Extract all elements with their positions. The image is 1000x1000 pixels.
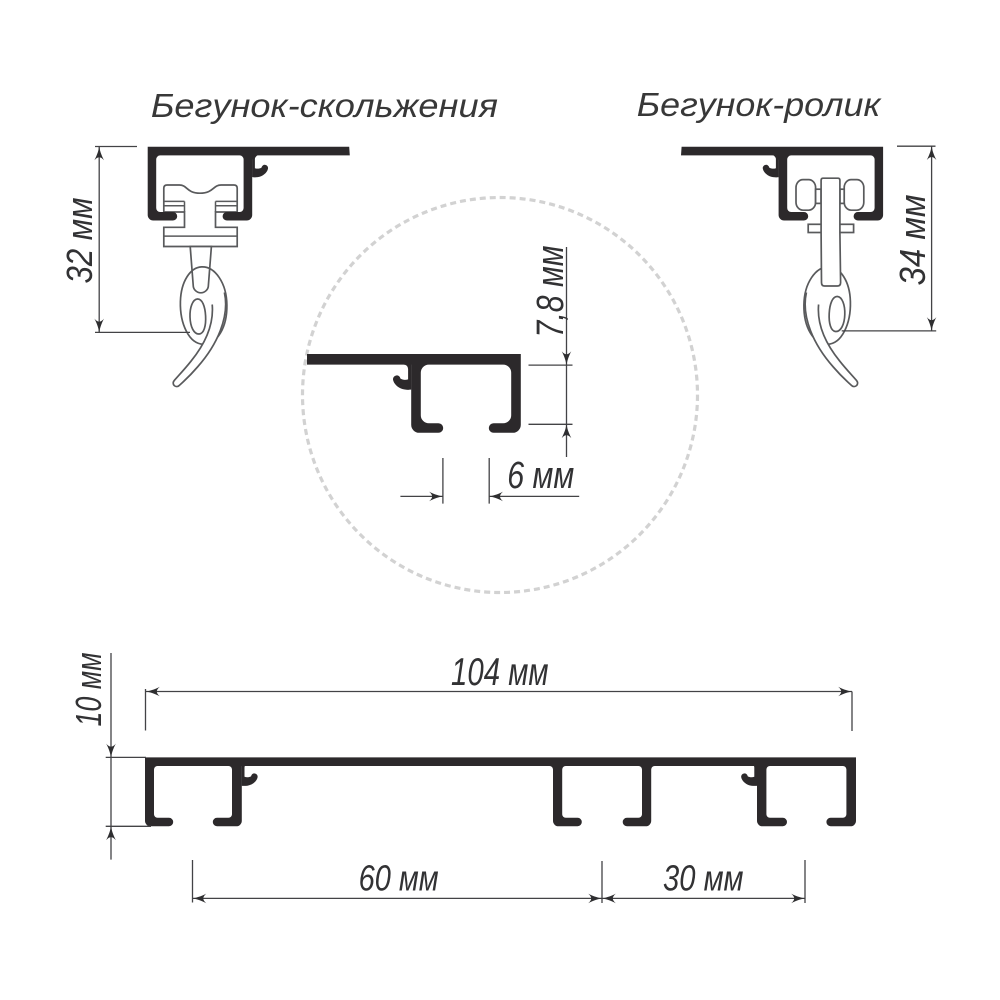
svg-text:10 мм: 10 мм bbox=[68, 653, 109, 727]
svg-text:34 мм: 34 мм bbox=[892, 195, 933, 286]
svg-text:7,8 мм: 7,8 мм bbox=[530, 246, 572, 338]
svg-text:30 мм: 30 мм bbox=[663, 858, 744, 899]
svg-text:Бегунок-ролик: Бегунок-ролик bbox=[637, 86, 882, 123]
svg-text:32 мм: 32 мм bbox=[59, 198, 100, 284]
svg-text:60 мм: 60 мм bbox=[359, 858, 439, 899]
svg-text:104 мм: 104 мм bbox=[451, 651, 549, 694]
svg-text:6 мм: 6 мм bbox=[507, 455, 574, 497]
svg-text:Бегунок-скольжения: Бегунок-скольжения bbox=[151, 87, 498, 124]
